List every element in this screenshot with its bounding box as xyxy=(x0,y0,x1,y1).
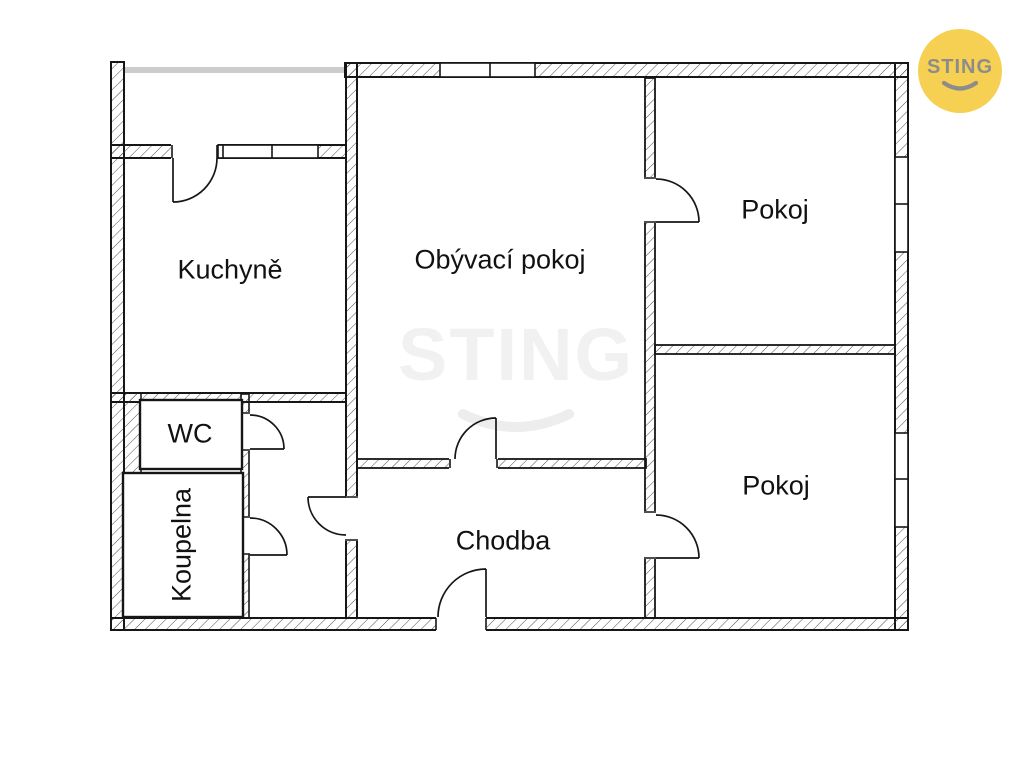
logo-smile-icon xyxy=(939,80,981,94)
door-vestibule-hall xyxy=(308,497,346,535)
door-koupelna xyxy=(250,518,287,555)
balcony-edge xyxy=(124,67,345,73)
room-boxes xyxy=(123,400,243,617)
floorplan-drawing xyxy=(0,0,1024,768)
floorplan-page: STING xyxy=(0,0,1024,768)
door-living-pokoj-top xyxy=(656,179,699,222)
door-balcony-kitchen xyxy=(173,158,217,202)
sting-logo: STING xyxy=(918,29,1002,113)
door-wc xyxy=(250,415,284,449)
door-living-hall xyxy=(455,418,496,459)
sting-logo-text: STING xyxy=(927,57,993,77)
doors xyxy=(173,158,699,617)
door-entrance xyxy=(438,569,486,617)
windows xyxy=(218,63,908,527)
door-hall-pokoj-bottom xyxy=(656,515,699,558)
